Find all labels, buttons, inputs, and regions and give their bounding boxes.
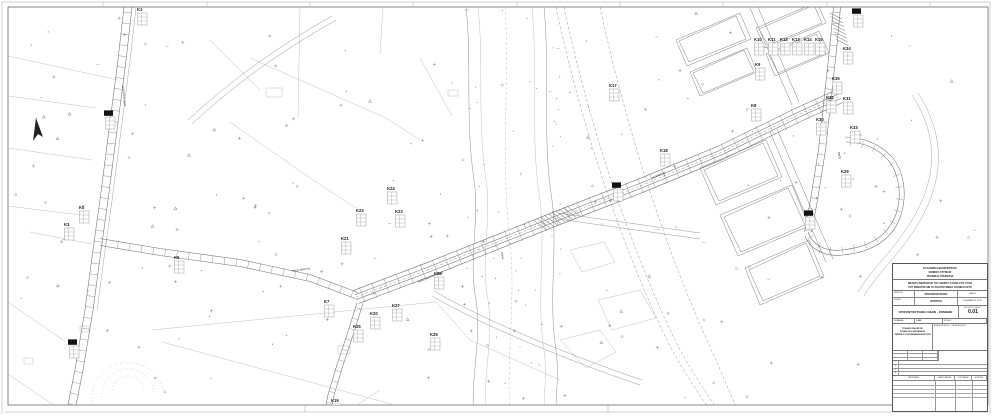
list-row-number: 1 (893, 361, 899, 364)
point-data-box (325, 305, 335, 317)
point-data-box (388, 192, 398, 204)
point-data-box (610, 89, 620, 101)
point-data-box (332, 404, 342, 416)
field-right: ΦΑΣΗ (958, 291, 987, 297)
survey-point-label: K19 (331, 398, 339, 403)
survey-point-label: K10 (754, 37, 762, 42)
point-data-box (842, 175, 852, 187)
survey-point-label: K1 (137, 7, 143, 12)
point-data-box (175, 261, 185, 273)
survey-point-k7: K7 (324, 299, 334, 317)
point-data-box (844, 102, 854, 114)
point-data-box (805, 43, 815, 55)
point-data-box (393, 309, 403, 321)
survey-point-label: K27 (392, 303, 400, 308)
survey-point-label: K25 (430, 332, 438, 337)
contour-arcs (92, 362, 164, 401)
point-data-box (614, 189, 624, 201)
survey-point-k12: K12 (780, 37, 790, 55)
survey-point-label: K11 (768, 37, 776, 42)
consultant-revisions: ΓΡΑΦΕΙΟ ΜΕΛΕΤΩΝ ΣΥΜΒΟΥΛΟΙ ΜΗΧΑΝΙΚΟΙ ΤΜΗΜ… (893, 324, 987, 351)
point-data-box (65, 228, 75, 240)
survey-point-label: K15 (815, 37, 823, 42)
survey-point-label: K2 (106, 111, 112, 116)
field-right: ΝΟΕΜΒΡΙΟΣ 2011 (958, 298, 987, 305)
survey-point-label: K21 (341, 236, 349, 241)
survey-point-k13: K13 (792, 37, 802, 55)
curved-road (188, 16, 336, 124)
agency-heading: ΕΛΛΗΝΙΚΗ ΔΗΜΟΚΡΑΤΙΑ ΝΟΜΟΣ ΑΤΤΙΚΗΣ ΤΕΧΝΙΚ… (893, 264, 987, 280)
survey-point-k35: K35 (852, 8, 863, 27)
consultant-line: ΤΜΗΜΑ ΣΥΓΚΟΙΝΩΝΙΑΚΩΝ ΕΡΓΩΝ (893, 334, 932, 337)
list-row-number: 4 (893, 372, 899, 375)
point-data-box (756, 68, 766, 80)
point-data-box (431, 338, 441, 350)
survey-point-label: K34 (843, 46, 851, 51)
survey-point-label: K18 (660, 148, 668, 153)
survey-point-label: K23 (395, 209, 403, 214)
survey-point-k17: K17 (609, 83, 619, 101)
field-rows: ΜΕΛΕΤΗ ΟΡΙΖΟΝΤΙΟΓΡΑΦΙΑ ΦΑΣΗ ΣΤΑΔΙΟ ΟΡΙΣΤ… (893, 291, 987, 306)
point-data-box (106, 117, 116, 129)
survey-point-label: K29 (841, 169, 849, 174)
parcel-boundaries (8, 7, 656, 416)
survey-point-k4: K4 (68, 339, 79, 358)
consultant-box: ΓΡΑΦΕΙΟ ΜΕΛΕΤΩΝ ΣΥΜΒΟΥΛΟΙ ΜΗΧΑΝΙΚΟΙ ΤΜΗΜ… (893, 324, 933, 350)
survey-point-k24: K24 (387, 186, 397, 204)
project-title: ΜΕΛΕΤΗ ΒΕΛΤΙΩΣΗΣ ΤΟΥ ΟΔΙΚΟΥ ΑΞΟΝΑ ΣΤΟ ΥΨ… (893, 280, 987, 291)
survey-point-label: K4 (70, 340, 76, 345)
field-label: ΣΤΑΔΙΟ (893, 298, 915, 305)
point-data-box (435, 277, 445, 289)
field-label: ΜΕΛΕΤΗ (893, 291, 915, 297)
list-row-number: 2 (893, 365, 899, 368)
survey-point-k22: K22 (356, 208, 366, 226)
survey-point-k16: K16 (612, 182, 623, 201)
survey-point-label: K16 (613, 183, 621, 188)
numbered-list: 1234 (893, 361, 987, 376)
revision-mini-table (893, 351, 939, 361)
survey-point-k25: K25 (430, 332, 440, 350)
drawing-sheet: ΠΑΡΑΠΛΕΥΡΟΣ ΟΔΟΣΛΕΩΦΟΡΟΣΑΓΡΟΤΙΚΗ ΟΔΟΣΡΕΜ… (0, 0, 992, 416)
survey-point-k19: K19 (331, 398, 341, 416)
point-data-box (752, 109, 762, 121)
point-data-box (661, 154, 671, 166)
point-data-box (396, 215, 406, 227)
survey-point-k3: K3 (64, 222, 74, 240)
survey-point-label: K33 (850, 125, 858, 130)
point-data-box (851, 131, 861, 143)
drawing-title-row: ΟΡΙΖΟΝΤΙΟΓΡΑΦΙΑ ΟΔΩΝ - ΚΟΜΒΩΝ ΑΡΙΘΜΟΣ ΣΧ… (893, 306, 987, 319)
point-data-box (781, 43, 791, 55)
survey-point-k11: K11 (768, 37, 778, 55)
revisions-box: ΑΝΑΘΕΩΡΗΣΕΙΣ - ΠΑΡΑΤΗΡΗΣΕΙΣ (933, 324, 987, 350)
survey-markers: K1K2K3K4K5K6K7K8K9K10K11K12K13K14K15K16K… (64, 7, 863, 416)
road-name-label: ΡΕΜΑ (500, 252, 505, 260)
survey-point-k31: K31 (843, 96, 853, 114)
survey-point-label: K26 (434, 271, 442, 276)
point-data-box (357, 214, 367, 226)
survey-point-k6: K6 (174, 255, 184, 273)
survey-point-label: K28 (805, 211, 813, 216)
sheet-label: ΦΥΛΛΟ (943, 319, 987, 323)
road-name-label: ΟΔΟΣ (837, 152, 842, 160)
list-row: 4 (893, 372, 987, 375)
point-data-box (755, 43, 765, 55)
survey-point-k36: K36 (832, 76, 842, 94)
survey-point-k1: K1 (137, 7, 147, 25)
riverside-avenue (556, 7, 740, 416)
signature-table-body (893, 381, 987, 411)
survey-point-label: K8 (751, 103, 757, 108)
sheet-margins (2, 2, 990, 414)
signature-table-header: ΕΓΚΡΙΣΗ (972, 376, 987, 380)
river (466, 7, 557, 416)
field-value: ΟΡΙΣΤΙΚΗ (915, 298, 958, 305)
site-plan-map: ΠΑΡΑΠΛΕΥΡΟΣ ΟΔΟΣΛΕΩΦΟΡΟΣΑΓΡΟΤΙΚΗ ΟΔΟΣΡΕΜ… (0, 0, 992, 416)
survey-point-k32: K32 (826, 95, 836, 113)
survey-point-label: K31 (843, 96, 851, 101)
point-data-box (816, 43, 826, 55)
spot-symbols (15, 10, 977, 400)
survey-point-label: K32 (826, 95, 834, 100)
signature-table: ΠΕΡΙΓΡΑΦΗΗΜΕΡΟΜΗΝΙΑΥΠΟΓΡΑΦΗΕΓΚΡΙΣΗ (893, 376, 987, 411)
survey-point-label: K24 (387, 186, 395, 191)
list-row-number: 3 (893, 369, 899, 372)
road-names: ΠΑΡΑΠΛΕΥΡΟΣ ΟΔΟΣΛΕΩΦΟΡΟΣΑΓΡΟΤΙΚΗ ΟΔΟΣΡΕΜ… (121, 86, 842, 284)
point-data-box (827, 101, 837, 113)
survey-point-k29: K29 (841, 169, 851, 187)
survey-point-label: K6 (174, 255, 180, 260)
point-data-box (817, 123, 827, 135)
title-block: ΕΛΛΗΝΙΚΗ ΔΗΜΟΚΡΑΤΙΑ ΝΟΜΟΣ ΑΤΤΙΚΗΣ ΤΕΧΝΙΚ… (892, 263, 988, 412)
drawing-title: ΟΡΙΖΟΝΤΙΟΓΡΑΦΙΑ ΟΔΩΝ - ΚΟΜΒΩΝ (893, 306, 959, 318)
survey-point-label: K7 (324, 299, 330, 304)
survey-point-k20: K20 (370, 311, 380, 329)
survey-point-label: K5 (79, 205, 85, 210)
point-data-box (806, 217, 816, 229)
survey-point-k33: K33 (850, 125, 860, 143)
point-data-box (80, 211, 90, 223)
survey-point-k5: K5 (79, 205, 89, 223)
agency-line: ΤΕΧΝΙΚΗ ΥΠΗΡΕΣΙΑ (893, 274, 987, 278)
survey-point-k15: K15 (815, 37, 825, 55)
survey-point-k8: K8 (751, 103, 761, 121)
point-data-box (793, 43, 803, 55)
signature-table-header: ΠΕΡΙΓΡΑΦΗ (893, 376, 935, 380)
survey-point-label: K17 (609, 83, 617, 88)
survey-point-k10: K10 (754, 37, 764, 55)
survey-point-label: K3 (64, 222, 70, 227)
survey-point-k14: K14 (804, 37, 814, 55)
survey-point-k23: K23 (395, 209, 405, 227)
survey-point-k18: K18 (660, 148, 670, 166)
roads (68, 7, 905, 416)
point-data-box (70, 346, 80, 358)
survey-point-k34: K34 (843, 46, 853, 64)
signature-table-header: ΗΜΕΡΟΜΗΝΙΑ (935, 376, 955, 380)
scale-label: ΚΛΙΜΑΚΑ (893, 319, 915, 323)
point-data-box (833, 82, 843, 94)
survey-point-label: K14 (804, 37, 812, 42)
scale-value: 1:500 (915, 319, 943, 323)
signature-table-header: ΥΠΟΓΡΑΦΗ (955, 376, 972, 380)
survey-point-label: K20 (370, 311, 378, 316)
point-data-box (854, 15, 864, 27)
survey-point-k25: K25 (353, 324, 363, 342)
survey-point-label: K22 (356, 208, 364, 213)
survey-point-k2: K2 (104, 110, 115, 129)
north-arrow-icon (33, 118, 43, 141)
road-name-label: ΠΡΟΣ ΚΕΝΤΡΟ (292, 266, 311, 273)
survey-point-k9: K9 (755, 62, 765, 80)
point-data-box (342, 242, 352, 254)
survey-point-label: K35 (853, 9, 861, 14)
field-value: ΟΡΙΖΟΝΤΙΟΓΡΑΦΙΑ (915, 291, 958, 297)
survey-point-label: K25 (353, 324, 361, 329)
survey-point-label: K13 (792, 37, 800, 42)
point-data-box (844, 52, 854, 64)
point-data-box (354, 330, 364, 342)
survey-point-label: K9 (755, 62, 761, 67)
survey-point-k30: K30 (816, 117, 826, 135)
point-data-box (371, 317, 381, 329)
point-data-box (769, 43, 779, 55)
project-line: ΤΟΥ ΡΕΜΑΤΟΣ ΜΕ ΤΑ ΑΠΑΙΤΟΥΜΕΝΑ ΤΕΧΝΙΚΑ ΕΡ… (893, 286, 987, 290)
survey-point-k21: K21 (341, 236, 351, 254)
drawing-number: 0.01 (959, 309, 987, 315)
point-data-box (138, 13, 148, 25)
survey-point-label: K12 (780, 37, 788, 42)
survey-point-label: K36 (832, 76, 840, 81)
survey-point-label: K30 (816, 117, 824, 122)
